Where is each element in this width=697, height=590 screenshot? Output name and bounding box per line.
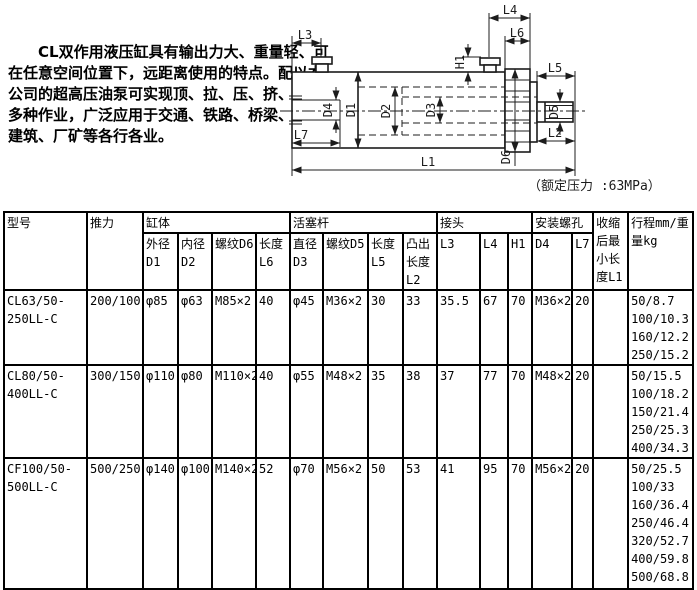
dim-label-d2: D2: [379, 104, 393, 118]
header-l3: L3: [437, 233, 480, 290]
header-rod-dia: 直径 D3: [290, 233, 323, 290]
header-cylinder: 缸体: [143, 212, 290, 233]
rod-thread-cell: M36×2: [323, 290, 368, 365]
cyl-thread-cell: M140×2: [212, 458, 256, 589]
rod-len-cell: 30: [368, 290, 403, 365]
header-row-groups: 型号 推力 缸体 活塞杆 接头 安装螺孔 收缩 后最 小长 度L1 行程mm/重…: [4, 212, 693, 233]
l4-cell: 67: [480, 290, 508, 365]
header-stroke-weight: 行程mm/重 量kg: [628, 212, 693, 290]
header-min-length: 收缩 后最 小长 度L1: [593, 212, 628, 290]
header-cyl-id: 内径 D2: [178, 233, 212, 290]
h1-cell: 70: [508, 458, 532, 589]
l7-cell: 20: [572, 458, 593, 589]
header-rod-thread: 螺纹D5: [323, 233, 368, 290]
cyl-od-cell: φ110: [143, 365, 178, 458]
intro-line: 公司的超高压油泵可实现顶、拉、压、挤、推等: [8, 84, 274, 105]
thrust-cell: 500/250: [87, 458, 143, 589]
header-piston-rod: 活塞杆: [290, 212, 437, 233]
d4-cell: M48×2: [532, 365, 572, 458]
header-model: 型号: [4, 212, 87, 290]
stroke-weight-cell: 50/8.7 100/10.3 160/12.2 250/15.2: [628, 290, 693, 365]
rod-dia-cell: φ45: [290, 290, 323, 365]
table-row: CL80/50- 400LL-C 300/150 φ110 φ80 M110×2…: [4, 365, 693, 458]
dim-label-l1: L1: [421, 155, 435, 169]
header-d4: D4: [532, 233, 572, 290]
l7-cell: 20: [572, 290, 593, 365]
cyl-id-cell: φ80: [178, 365, 212, 458]
dim-label-l2: L2: [548, 126, 562, 140]
dim-label-l7: L7: [294, 128, 308, 142]
dim-label-d4: D4: [321, 103, 335, 117]
d4-cell: M36×2: [532, 290, 572, 365]
h1-cell: 70: [508, 290, 532, 365]
rod-thread-cell: M48×2: [323, 365, 368, 458]
header-cyl-thread: 螺纹D6: [212, 233, 256, 290]
l3-cell: 35.5: [437, 290, 480, 365]
dim-label-d3: D3: [424, 103, 438, 117]
dim-label-h1: H1: [453, 55, 467, 69]
h1-cell: 70: [508, 365, 532, 458]
header-l7: L7: [572, 233, 593, 290]
header-mount-hole: 安装螺孔: [532, 212, 593, 233]
header-rod-protrude: 凸出 长度 L2: [403, 233, 437, 290]
cyl-od-cell: φ140: [143, 458, 178, 589]
cyl-len-cell: 40: [256, 290, 290, 365]
table-row: CL63/50- 250LL-C 200/100 φ85 φ63 M85×2 4…: [4, 290, 693, 365]
cyl-thread-cell: M110×2: [212, 365, 256, 458]
header-rod-len: 长度 L5: [368, 233, 403, 290]
l3-cell: 37: [437, 365, 480, 458]
header-cyl-od: 外径 D1: [143, 233, 178, 290]
dim-label-l3: L3: [298, 28, 312, 42]
cyl-od-cell: φ85: [143, 290, 178, 365]
thrust-cell: 300/150: [87, 365, 143, 458]
rated-pressure-caption: （额定压力 :63MPa）: [528, 179, 661, 194]
intro-line: CL双作用液压缸具有输出力大、重量轻、可: [8, 42, 274, 63]
intro-line: 在任意空间位置下，远距离使用的特点。配以本: [8, 63, 274, 84]
dim-label-d5: D5: [547, 105, 561, 119]
header-thrust: 推力: [87, 212, 143, 290]
rod-protrude-cell: 33: [403, 290, 437, 365]
dim-label-d6: D6: [499, 150, 513, 164]
rod-thread-cell: M56×2: [323, 458, 368, 589]
cyl-thread-cell: M85×2: [212, 290, 256, 365]
cyl-id-cell: φ63: [178, 290, 212, 365]
cylinder-technical-drawing: L3 L4 L6 L5 L2 L7 L1 H1 D1 D2 D3 D4 D5 D…: [270, 0, 697, 207]
model-cell: CF100/50- 500LL-C: [4, 458, 87, 589]
min-len-cell: [593, 365, 628, 458]
cyl-len-cell: 52: [256, 458, 290, 589]
cyl-len-cell: 40: [256, 365, 290, 458]
rod-len-cell: 50: [368, 458, 403, 589]
intro-paragraph: CL双作用液压缸具有输出力大、重量轻、可 在任意空间位置下，远距离使用的特点。配…: [8, 42, 274, 147]
d4-cell: M56×2: [532, 458, 572, 589]
dim-label-d1: D1: [344, 103, 358, 117]
dim-label-l4: L4: [503, 3, 517, 17]
min-len-cell: [593, 458, 628, 589]
rod-dia-cell: φ70: [290, 458, 323, 589]
model-cell: CL80/50- 400LL-C: [4, 365, 87, 458]
model-cell: CL63/50- 250LL-C: [4, 290, 87, 365]
thrust-cell: 200/100: [87, 290, 143, 365]
rod-protrude-cell: 38: [403, 365, 437, 458]
header-joint: 接头: [437, 212, 532, 233]
dim-label-l6: L6: [510, 26, 524, 40]
cyl-id-cell: φ100: [178, 458, 212, 589]
spec-table: 型号 推力 缸体 活塞杆 接头 安装螺孔 收缩 后最 小长 度L1 行程mm/重…: [3, 211, 694, 590]
rod-dia-cell: φ55: [290, 365, 323, 458]
stroke-weight-cell: 50/15.5 100/18.2 150/21.4 250/25.3 400/3…: [628, 365, 693, 458]
header-l4: L4: [480, 233, 508, 290]
header-h1: H1: [508, 233, 532, 290]
intro-line: 建筑、厂矿等各行各业。: [8, 126, 274, 147]
rod-protrude-cell: 53: [403, 458, 437, 589]
intro-line: 多种作业，广泛应用于交通、铁路、桥梁、地铁: [8, 105, 274, 126]
min-len-cell: [593, 290, 628, 365]
l4-cell: 95: [480, 458, 508, 589]
l3-cell: 41: [437, 458, 480, 589]
l7-cell: 20: [572, 365, 593, 458]
rod-len-cell: 35: [368, 365, 403, 458]
table-row: CF100/50- 500LL-C 500/250 φ140 φ100 M140…: [4, 458, 693, 589]
stroke-weight-cell: 50/25.5 100/33 160/36.4 250/46.4 320/52.…: [628, 458, 693, 589]
header-cyl-len: 长度 L6: [256, 233, 290, 290]
dim-label-l5: L5: [548, 61, 562, 75]
l4-cell: 77: [480, 365, 508, 458]
